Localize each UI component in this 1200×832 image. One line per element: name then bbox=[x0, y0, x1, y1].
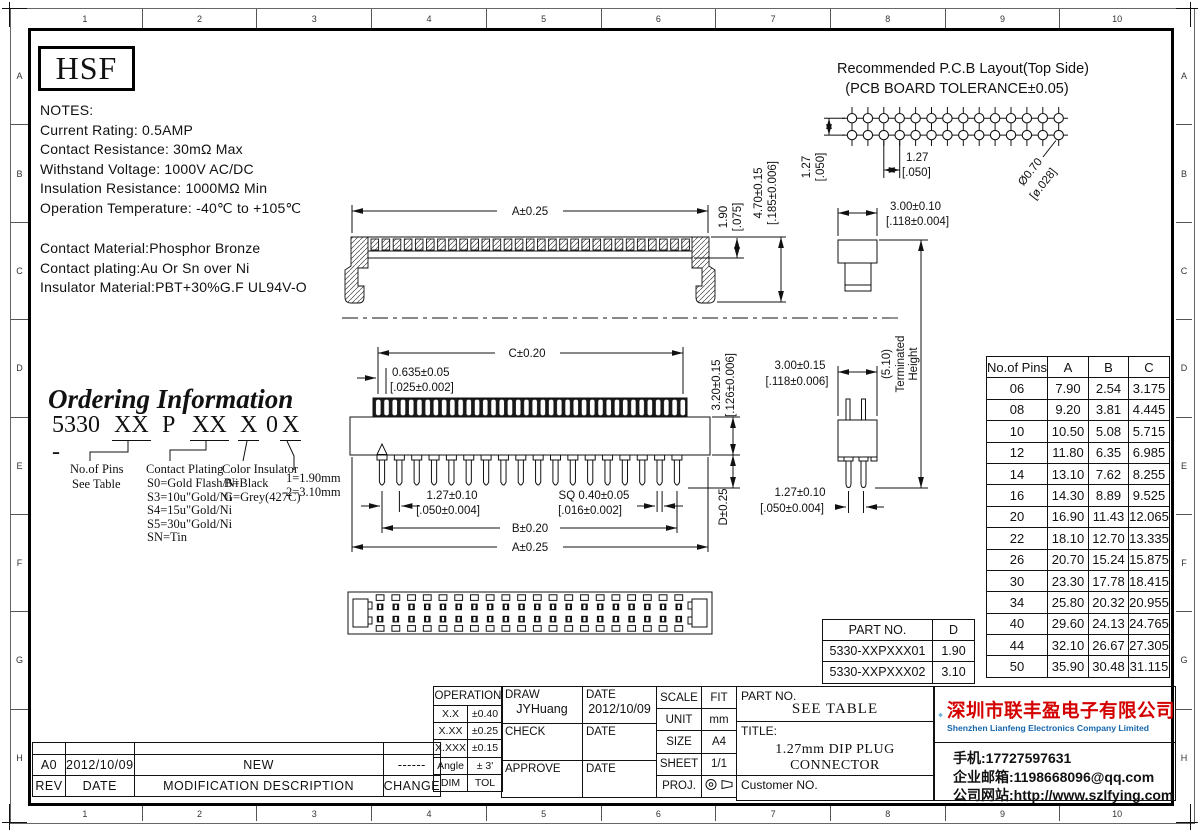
unit-label: UNIT bbox=[657, 709, 702, 731]
cell-pins: 12 bbox=[987, 442, 1048, 463]
cell-c: 3.175 bbox=[1129, 378, 1170, 399]
tolerance-row: DIM TOL bbox=[434, 774, 503, 791]
pins-table-row: 50 35.90 30.48 31.115 bbox=[987, 656, 1170, 677]
cell-a: 35.90 bbox=[1048, 656, 1089, 677]
ruler-number: 2 bbox=[143, 806, 258, 821]
tolerance-value: ± 3' bbox=[468, 757, 503, 774]
cell-a: 16.90 bbox=[1048, 506, 1089, 527]
code-pins-placeholder: XX bbox=[112, 412, 151, 441]
cell-a: 13.10 bbox=[1048, 463, 1089, 484]
rev-date: 2012/10/09 bbox=[66, 755, 135, 776]
pins-table-header-row: No.of Pins A B C bbox=[987, 357, 1170, 378]
hsf-logo: HSF bbox=[38, 46, 135, 91]
ruler-letter: H bbox=[1176, 710, 1192, 806]
cell-c: 13.335 bbox=[1129, 528, 1170, 549]
ruler-number: 8 bbox=[831, 9, 946, 28]
cell-b: 2.54 bbox=[1089, 378, 1129, 399]
ruler-number: 3 bbox=[257, 9, 372, 28]
pins-table-row: 14 13.10 7.62 8.255 bbox=[987, 463, 1170, 484]
cell-b: 26.67 bbox=[1089, 635, 1129, 656]
tolerance-key: X.XXX bbox=[434, 740, 468, 757]
cell-b: 3.81 bbox=[1089, 399, 1129, 420]
cell-pins: 22 bbox=[987, 528, 1048, 549]
description-header: MODIFICATION DESCRIPTION bbox=[134, 776, 383, 797]
cell-c: 18.415 bbox=[1129, 570, 1170, 591]
cell-a: 23.30 bbox=[1048, 570, 1089, 591]
ruler-bottom: 12345678910 bbox=[28, 806, 1174, 821]
cell-c: 20.955 bbox=[1129, 592, 1170, 613]
cell-pins: 08 bbox=[987, 399, 1048, 420]
cell-pins: 10 bbox=[987, 421, 1048, 442]
ruler-number: 7 bbox=[716, 9, 831, 28]
customer-no-label: Customer NO. bbox=[741, 778, 933, 792]
cell-b: 24.13 bbox=[1089, 613, 1129, 634]
company-phone: 手机:17727597631 bbox=[953, 749, 1175, 768]
plating-option: SN=Tin bbox=[147, 531, 238, 545]
note-line: Withstand Voltage: 1000V AC/DC bbox=[40, 160, 301, 180]
revision-header-row: REV DATE MODIFICATION DESCRIPTION CHANGE bbox=[33, 776, 441, 797]
cell-b: 5.08 bbox=[1089, 421, 1129, 442]
note-line: Contact Resistance: 30mΩ Max bbox=[40, 140, 301, 160]
height-option: 1=1.90mm bbox=[286, 472, 341, 486]
ruler-number: 10 bbox=[1060, 9, 1174, 28]
cell-a: 10.50 bbox=[1048, 421, 1089, 442]
ruler-letter: A bbox=[11, 28, 28, 125]
tolerance-key: Angle bbox=[434, 757, 468, 774]
tolerance-key: X.X bbox=[434, 706, 468, 723]
cell-a: 32.10 bbox=[1048, 635, 1089, 656]
part-info-block: PART NO. SEE TABLE TITLE: 1.27mm DIP PLU… bbox=[736, 686, 934, 801]
ruler-number: 8 bbox=[831, 806, 946, 821]
company-name-cn: 深圳市联丰盈电子有限公司 bbox=[947, 697, 1175, 723]
materials-block: Contact Material:Phosphor BronzeContact … bbox=[40, 239, 307, 298]
cell-a: 20.70 bbox=[1048, 549, 1089, 570]
ruler-letter: H bbox=[11, 710, 28, 806]
ruler-letter: C bbox=[1176, 223, 1192, 320]
cell-b: 30.48 bbox=[1089, 656, 1129, 677]
cell-b: 7.62 bbox=[1089, 463, 1129, 484]
rev-value: A0 bbox=[33, 755, 66, 776]
ruler-letter: E bbox=[1176, 418, 1192, 515]
height-option: 2=3.10mm bbox=[286, 486, 341, 500]
cell-pins: 06 bbox=[987, 378, 1048, 399]
col-header-part-no: PART NO. bbox=[823, 620, 933, 641]
pins-table-row: 06 7.90 2.54 3.175 bbox=[987, 378, 1170, 399]
ruler-left: ABCDEFGH bbox=[11, 28, 28, 806]
cell-pins: 26 bbox=[987, 549, 1048, 570]
hsf-logo-text: HSF bbox=[56, 50, 118, 87]
cell-b: 20.32 bbox=[1089, 592, 1129, 613]
draw-name: JYHuang bbox=[502, 702, 582, 716]
size-label: SIZE bbox=[657, 731, 702, 753]
drawing-sheet: 12345678910 12345678910 ABCDEFGH ABCDEFG… bbox=[0, 0, 1200, 832]
cell-a: 18.10 bbox=[1048, 528, 1089, 549]
cell-c: 24.765 bbox=[1129, 613, 1170, 634]
scale-label: SCALE bbox=[657, 687, 702, 709]
cell-pins: 50 bbox=[987, 656, 1048, 677]
ruler-number: 5 bbox=[487, 9, 602, 28]
code-zero: 0 bbox=[266, 412, 278, 439]
ruler-right: ABCDEFGH bbox=[1176, 28, 1192, 806]
pins-table-row: 12 11.80 6.35 6.985 bbox=[987, 442, 1170, 463]
cell-c: 8.255 bbox=[1129, 463, 1170, 484]
rev-change: ------ bbox=[383, 755, 440, 776]
ruler-letter: F bbox=[11, 515, 28, 612]
note-line: Insulation Resistance: 1000MΩ Min bbox=[40, 179, 301, 199]
revision-empty-row bbox=[33, 743, 441, 755]
part-table-row: 5330-XXPXXX02 3.10 bbox=[823, 662, 975, 683]
pins-dimension-table: No.of Pins A B C 06 7.90 2.54 3.175 08 9… bbox=[986, 356, 1170, 678]
col-header-d: D bbox=[933, 620, 975, 641]
size-value: A4 bbox=[702, 731, 737, 753]
ruler-letter: E bbox=[11, 418, 28, 515]
ruler-letter: F bbox=[1176, 515, 1192, 612]
ruler-number: 4 bbox=[372, 806, 487, 821]
part-table-header-row: PART NO. D bbox=[823, 620, 975, 641]
cell-pins: 44 bbox=[987, 635, 1048, 656]
approve-date-label: DATE bbox=[586, 763, 656, 775]
revision-table: A0 2012/10/09 NEW ------ REV DATE MODIFI… bbox=[32, 742, 441, 797]
note-line: Current Rating: 0.5AMP bbox=[40, 121, 301, 141]
tolerance-key: X.XX bbox=[434, 723, 468, 740]
plating-option: S4=15u"Gold/Ni bbox=[147, 504, 238, 518]
pins-table-row: 34 25.80 20.32 20.955 bbox=[987, 592, 1170, 613]
cell-c: 15.875 bbox=[1129, 549, 1170, 570]
ruler-number: 9 bbox=[946, 9, 1061, 28]
tolerance-value: ±0.25 bbox=[468, 723, 503, 740]
callout-pins-sub: See Table bbox=[72, 477, 121, 492]
cell-part-no: 5330-XXPXXX02 bbox=[823, 662, 933, 683]
cell-a: 7.90 bbox=[1048, 378, 1089, 399]
ruler-letter: A bbox=[1176, 28, 1192, 125]
code-color-placeholder: X bbox=[238, 412, 259, 441]
rev-description: NEW bbox=[134, 755, 383, 776]
ruler-number: 4 bbox=[372, 9, 487, 28]
tolerance-value: ±0.15 bbox=[468, 740, 503, 757]
company-website: 公司网站:http://www.szlfying.com bbox=[953, 786, 1175, 805]
change-header: CHANGE bbox=[383, 776, 440, 797]
pins-table-row: 26 20.70 15.24 15.875 bbox=[987, 549, 1170, 570]
ruler-letter: D bbox=[1176, 320, 1192, 417]
revision-row: A0 2012/10/09 NEW ------ bbox=[33, 755, 441, 776]
ruler-letter: C bbox=[11, 223, 28, 320]
tolerance-header: OPERATION bbox=[434, 687, 503, 706]
tolerance-row: Angle ± 3' bbox=[434, 757, 503, 774]
draw-row: DRAWJYHuang DATE2012/10/09 bbox=[502, 687, 657, 724]
material-line: Insulator Material:PBT+30%G.F UL94V-O bbox=[40, 278, 307, 298]
tolerance-key: DIM bbox=[434, 774, 468, 791]
ruler-number: 3 bbox=[257, 806, 372, 821]
cell-c: 27.305 bbox=[1129, 635, 1170, 656]
cell-b: 11.43 bbox=[1089, 506, 1129, 527]
part-no-value: SEE TABLE bbox=[737, 701, 933, 718]
ruler-top: 12345678910 bbox=[28, 9, 1174, 28]
cell-b: 15.24 bbox=[1089, 549, 1129, 570]
pins-table-row: 44 32.10 26.67 27.305 bbox=[987, 635, 1170, 656]
cell-b: 8.89 bbox=[1089, 485, 1129, 506]
ruler-number: 7 bbox=[716, 806, 831, 821]
ruler-number: 10 bbox=[1060, 806, 1174, 821]
cell-pins: 30 bbox=[987, 570, 1048, 591]
callout-pins-label: No.of Pins bbox=[70, 462, 123, 477]
notes-title: NOTES: bbox=[40, 101, 301, 121]
company-name-en: Shenzhen Lianfeng Electronics Company Li… bbox=[947, 723, 1175, 733]
cell-pins: 14 bbox=[987, 463, 1048, 484]
cell-a: 14.30 bbox=[1048, 485, 1089, 506]
cell-b: 12.70 bbox=[1089, 528, 1129, 549]
draw-label: DRAW bbox=[505, 689, 582, 701]
cell-c: 4.445 bbox=[1129, 399, 1170, 420]
sheet-info-table: SCALEFIT UNITmm SIZEA4 SHEET1/1 PROJ. bbox=[656, 686, 737, 798]
part-table-row: 5330-XXPXXX01 1.90 bbox=[823, 641, 975, 662]
tolerance-row: X.XXX ±0.15 bbox=[434, 740, 503, 757]
col-header-a: A bbox=[1048, 357, 1089, 378]
code-height-placeholder: X bbox=[280, 412, 301, 441]
company-block: 深圳市联丰盈电子有限公司 Shenzhen Lianfeng Electroni… bbox=[934, 686, 1176, 801]
rev-header: REV bbox=[33, 776, 66, 797]
company-logo-icon bbox=[938, 692, 943, 738]
pins-table-row: 40 29.60 24.13 24.765 bbox=[987, 613, 1170, 634]
notes-block: NOTES: Current Rating: 0.5AMPContact Res… bbox=[40, 101, 301, 218]
unit-value: mm bbox=[702, 709, 737, 731]
draw-date-label: DATE bbox=[586, 689, 656, 701]
tolerance-value: ±0.40 bbox=[468, 706, 503, 723]
pins-table-row: 20 16.90 11.43 12.065 bbox=[987, 506, 1170, 527]
draw-date: 2012/10/09 bbox=[583, 702, 656, 716]
ruler-letter: B bbox=[1176, 125, 1192, 222]
tolerance-row: X.XX ±0.25 bbox=[434, 723, 503, 740]
ruler-number: 6 bbox=[602, 806, 717, 821]
pins-table-row: 08 9.20 3.81 4.445 bbox=[987, 399, 1170, 420]
cell-d: 1.90 bbox=[933, 641, 975, 662]
ruler-number: 2 bbox=[143, 9, 258, 28]
approve-label: APPROVE bbox=[505, 763, 582, 775]
ruler-letter: D bbox=[11, 320, 28, 417]
plating-option: S5=30u"Gold/Ni bbox=[147, 518, 238, 532]
ruler-number: 9 bbox=[946, 806, 1061, 821]
drawing-title: 1.27mm DIP PLUG CONNECTOR bbox=[737, 742, 933, 774]
cell-b: 6.35 bbox=[1089, 442, 1129, 463]
proj-label: PROJ. bbox=[657, 775, 702, 797]
tolerance-row: X.X ±0.40 bbox=[434, 706, 503, 723]
ordering-title: Ordering Information bbox=[48, 384, 293, 415]
company-email: 企业邮箱:1198668096@qq.com bbox=[953, 768, 1175, 787]
cell-a: 25.80 bbox=[1048, 592, 1089, 613]
callout-height-options: 1=1.90mm2=3.10mm bbox=[286, 472, 341, 499]
tolerance-table: OPERATION X.X ±0.40 X.XX ±0.25 X.XXX ±0.… bbox=[433, 686, 503, 792]
code-p: P bbox=[162, 412, 175, 439]
cell-c: 5.715 bbox=[1129, 421, 1170, 442]
cell-c: 31.115 bbox=[1129, 656, 1170, 677]
material-line: Contact plating:Au Or Sn over Ni bbox=[40, 259, 307, 279]
cell-pins: 20 bbox=[987, 506, 1048, 527]
date-header: DATE bbox=[66, 776, 135, 797]
col-header-b: B bbox=[1089, 357, 1129, 378]
cell-a: 29.60 bbox=[1048, 613, 1089, 634]
signature-table: DRAWJYHuang DATE2012/10/09 CHECK DATE AP… bbox=[501, 686, 657, 798]
col-header-c: C bbox=[1129, 357, 1170, 378]
ruler-number: 1 bbox=[28, 806, 143, 821]
scale-value: FIT bbox=[702, 687, 737, 709]
cell-a: 9.20 bbox=[1048, 399, 1089, 420]
projection-symbol bbox=[703, 778, 735, 791]
ruler-number: 5 bbox=[487, 806, 602, 821]
ruler-letter: G bbox=[1176, 612, 1192, 709]
check-label: CHECK bbox=[505, 726, 582, 738]
cell-d: 3.10 bbox=[933, 662, 975, 683]
ruler-letter: G bbox=[11, 612, 28, 709]
ruler-number: 6 bbox=[602, 9, 717, 28]
pins-table-row: 22 18.10 12.70 13.335 bbox=[987, 528, 1170, 549]
part-number-table: PART NO. D 5330-XXPXXX01 1.90 5330-XXPXX… bbox=[822, 619, 975, 684]
callout-plating-label: Contact Plating bbox=[146, 462, 223, 477]
approve-row: APPROVE DATE bbox=[502, 761, 657, 798]
check-date-label: DATE bbox=[586, 726, 656, 738]
tolerance-value: TOL bbox=[468, 774, 503, 791]
sheet-label: SHEET bbox=[657, 753, 702, 775]
sheet-value: 1/1 bbox=[702, 753, 737, 775]
cell-a: 11.80 bbox=[1048, 442, 1089, 463]
ruler-number: 1 bbox=[28, 9, 143, 28]
material-line: Contact Material:Phosphor Bronze bbox=[40, 239, 307, 259]
check-row: CHECK DATE bbox=[502, 724, 657, 761]
cell-b: 17.78 bbox=[1089, 570, 1129, 591]
cell-c: 6.985 bbox=[1129, 442, 1170, 463]
pins-table-row: 30 23.30 17.78 18.415 bbox=[987, 570, 1170, 591]
note-line: Operation Temperature: -40℃ to +105℃ bbox=[40, 199, 301, 219]
code-plating-placeholder: XX bbox=[190, 412, 229, 441]
cell-pins: 34 bbox=[987, 592, 1048, 613]
col-header-no-of-pins: No.of Pins bbox=[987, 357, 1048, 378]
cell-c: 12.065 bbox=[1129, 506, 1170, 527]
title-label: TITLE: bbox=[741, 724, 933, 738]
code-prefix: 5330 - bbox=[52, 412, 100, 466]
cell-c: 9.525 bbox=[1129, 485, 1170, 506]
cell-pins: 40 bbox=[987, 613, 1048, 634]
pins-table-row: 10 10.50 5.08 5.715 bbox=[987, 421, 1170, 442]
pins-table-row: 16 14.30 8.89 9.525 bbox=[987, 485, 1170, 506]
ruler-letter: B bbox=[11, 125, 28, 222]
cell-part-no: 5330-XXPXXX01 bbox=[823, 641, 933, 662]
cell-pins: 16 bbox=[987, 485, 1048, 506]
